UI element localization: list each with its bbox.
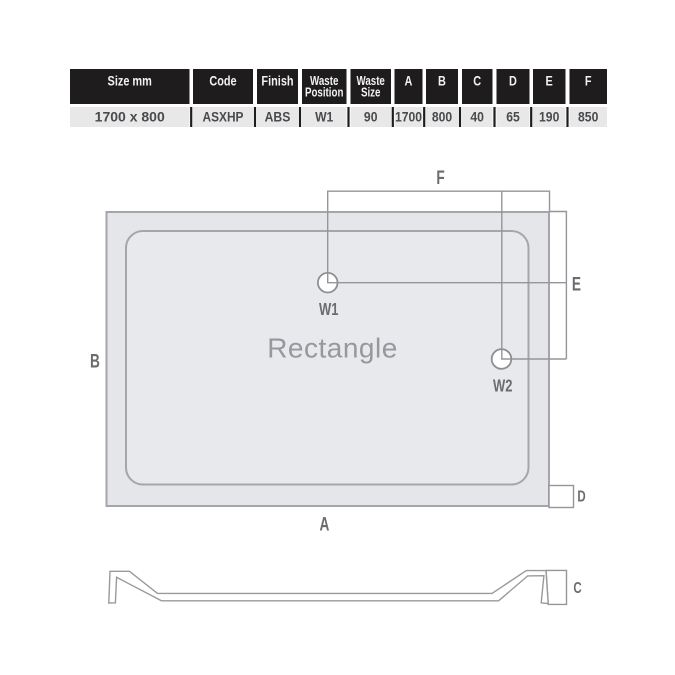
svg-text:90: 90 xyxy=(364,108,378,124)
svg-text:Size: Size xyxy=(361,86,381,100)
svg-text:65: 65 xyxy=(506,108,520,124)
svg-text:A: A xyxy=(320,513,330,535)
svg-text:C: C xyxy=(473,73,481,89)
svg-text:E: E xyxy=(572,273,581,295)
svg-text:Code: Code xyxy=(209,73,236,89)
svg-text:F: F xyxy=(585,73,592,89)
svg-text:40: 40 xyxy=(470,108,484,124)
svg-text:D: D xyxy=(509,73,517,89)
svg-text:ASXHP: ASXHP xyxy=(203,108,244,124)
svg-text:Size mm: Size mm xyxy=(108,73,152,89)
svg-text:E: E xyxy=(546,73,553,89)
svg-text:D: D xyxy=(577,487,585,505)
svg-text:B: B xyxy=(438,73,446,89)
svg-text:190: 190 xyxy=(539,108,559,124)
svg-text:Position: Position xyxy=(305,86,343,100)
svg-text:ABS: ABS xyxy=(265,108,291,124)
svg-text:C: C xyxy=(573,578,581,596)
svg-text:W1: W1 xyxy=(319,300,339,320)
svg-text:1700: 1700 xyxy=(395,108,422,124)
svg-text:Rectangle: Rectangle xyxy=(267,333,398,364)
svg-text:Finish: Finish xyxy=(261,73,293,89)
svg-text:1700 x 800: 1700 x 800 xyxy=(95,108,165,124)
svg-text:F: F xyxy=(436,167,444,189)
svg-text:A: A xyxy=(405,73,413,89)
svg-text:850: 850 xyxy=(578,108,598,124)
svg-text:W1: W1 xyxy=(315,108,333,124)
svg-text:800: 800 xyxy=(432,108,452,124)
svg-text:B: B xyxy=(90,350,100,372)
svg-text:W2: W2 xyxy=(493,377,513,397)
